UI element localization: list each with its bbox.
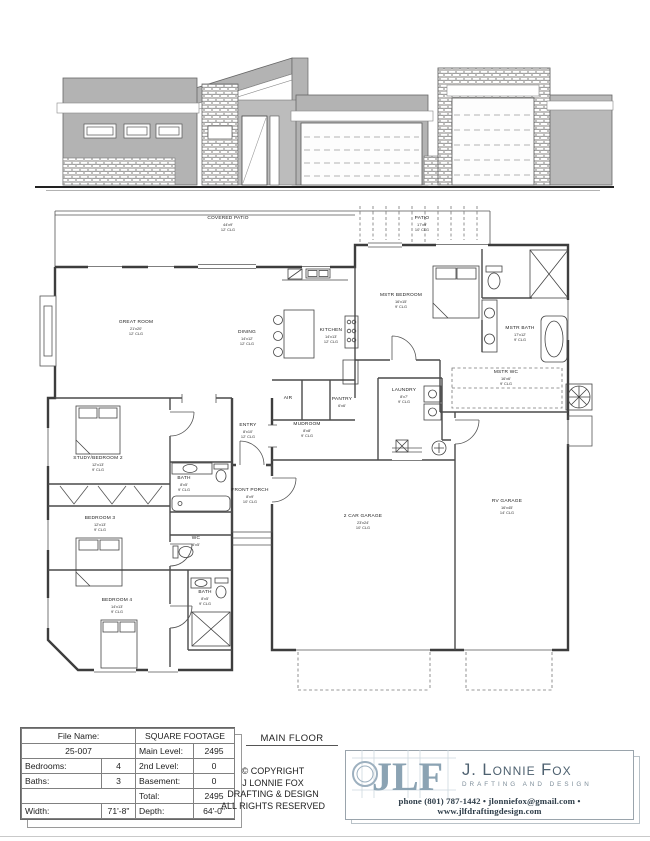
room-label-rv-garage: RV GARAGE16'x45'14' CLG — [492, 499, 522, 515]
bed-2 — [76, 406, 120, 454]
room-label-air: AIR — [284, 396, 293, 402]
baths-value: 3 — [102, 774, 136, 789]
room-label-bath2: BATH8'x5'9' CLG — [198, 590, 211, 606]
rv-header — [447, 85, 539, 96]
room-label-2-car-garage: 2 CAR GARAGE23'x24'10' CLG — [344, 514, 382, 530]
driveway-lines — [298, 652, 552, 690]
second-level-label: 2nd Level: — [136, 759, 194, 774]
room-label-study-bedroom2: STUDY/BEDROOM 212'x13'9' CLG — [73, 456, 122, 472]
copyright-block: © COPYRIGHT J LONNIE FOX DRAFTING & DESI… — [198, 766, 348, 812]
room-label-bedroom4: BEDROOM 414'x13'9' CLG — [102, 598, 133, 614]
bedrooms-label: Bedrooms: — [22, 759, 102, 774]
empty-cell — [22, 789, 136, 804]
room-label-kitchen: KITCHEN14'x13'12' CLG — [320, 328, 342, 344]
room-label-front-porch: FRONT PORCH8'x9'10' CLG — [231, 488, 268, 504]
plan-title: MAIN FLOOR — [246, 733, 338, 746]
copyright-line: DRAFTING & DESIGN — [198, 789, 348, 801]
master-shower — [530, 250, 568, 298]
room-label-mstr-bedroom: MSTR BEDROOM16'x15'9' CLG — [380, 293, 422, 309]
attic-fan — [566, 384, 592, 410]
room-label-entry: ENTRY8'x10'12' CLG — [239, 423, 256, 439]
cooktop — [345, 316, 358, 348]
stone-wainscot — [63, 158, 175, 185]
bed-4 — [101, 620, 137, 668]
copyright-line: © COPYRIGHT — [198, 766, 348, 778]
master-vanity — [482, 300, 497, 352]
room-label-mstr-wc: MSTR WC16'x6'9' CLG — [494, 370, 518, 386]
width-value: 71'-8" — [102, 804, 136, 819]
room-label-pantry: PANTRY6'x6' — [332, 397, 352, 408]
monogram-letters: JLF — [372, 754, 443, 798]
room-label-great-room: GREAT ROOM21'x20'12' CLG — [119, 320, 153, 336]
entry-sidelight — [270, 116, 279, 185]
wc-toilet — [173, 546, 193, 558]
room-label-mudroom: MUDROOM8'x8'9' CLG — [293, 422, 320, 438]
main-level-label: Main Level: — [136, 744, 194, 759]
master-toilet — [486, 266, 502, 289]
room-label-dining: DINING14'x12'12' CLG — [238, 330, 256, 346]
main-level-value: 2495 — [194, 744, 235, 759]
room-label-bedroom3: BEDROOM 312'x13'9' CLG — [85, 516, 116, 532]
baths-label: Baths: — [22, 774, 102, 789]
width-label: Width: — [22, 804, 102, 819]
room-label-covered-patio: COVERED PATIO44'x9'12' CLG — [207, 216, 248, 232]
room-label-patio: PATIO17'x9'10' CLG — [415, 216, 430, 232]
depth-label: Depth: — [136, 804, 194, 819]
total-label: Total: — [136, 789, 194, 804]
column-window — [208, 126, 232, 139]
room-label-wc: WC5'x5' — [192, 536, 200, 547]
right-fascia-band — [547, 101, 613, 110]
left-fascia-band — [57, 103, 199, 113]
contact-info: phone (801) 787-1442 • jlonniefox@gmail.… — [346, 796, 633, 816]
kitchen-island — [274, 310, 315, 358]
copyright-line: ALL RIGHTS RESERVED — [198, 801, 348, 813]
elevation-drawing — [0, 0, 650, 200]
master-bed — [433, 266, 479, 318]
company-tagline: DRAFTING AND DESIGN — [462, 781, 592, 788]
room-label-bath: BATH8'x5'9' CLG — [177, 476, 190, 492]
company-logo-block: JLF J. Lonnie Fox DRAFTING AND DESIGN ph… — [345, 750, 634, 820]
company-name: J. Lonnie Fox — [462, 761, 592, 780]
bed-3 — [76, 538, 122, 586]
rv-garage-door — [452, 98, 534, 185]
jlf-monogram: JLF — [352, 750, 456, 798]
room-label-mstr-bath: MSTR BATH17'x12'9' CLG — [505, 326, 534, 342]
room-label-laundry: LAUNDRY8'x7'9' CLG — [392, 388, 416, 404]
sqft-header: SQUARE FOOTAGE — [136, 729, 235, 744]
copyright-line: J LONNIE FOX — [198, 778, 348, 790]
left-windows — [84, 124, 182, 138]
garage-fascia-band — [291, 111, 433, 121]
washer-dryer — [424, 386, 441, 420]
basement-label: Basement: — [136, 774, 194, 789]
bedrooms-value: 4 — [102, 759, 136, 774]
floor-drain — [396, 440, 408, 452]
file-number: 25-007 — [22, 744, 136, 759]
table-row: 25-007 Main Level: 2495 — [22, 744, 235, 759]
water-heater — [432, 441, 446, 455]
plan-fixtures — [76, 250, 592, 690]
page-bottom-rule — [0, 836, 650, 837]
bath2 — [191, 578, 230, 646]
table-row: File Name: SQUARE FOOTAGE — [22, 729, 235, 744]
file-name-label: File Name: — [22, 729, 136, 744]
house-front-elevation — [35, 58, 614, 191]
